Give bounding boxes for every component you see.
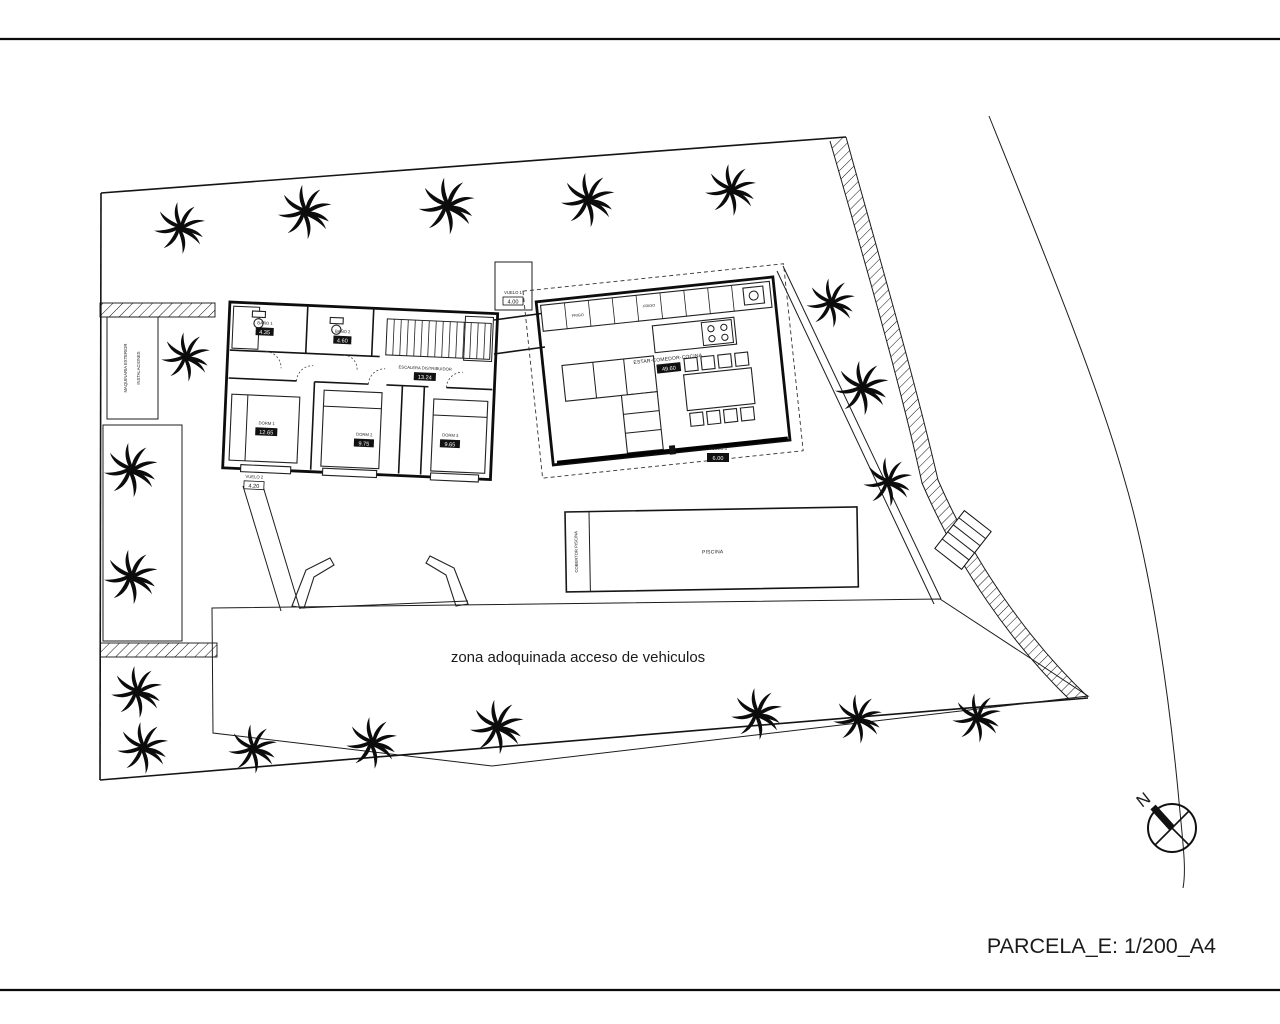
vuelo3-name: VUELO 3 xyxy=(709,446,727,451)
machinery-label-line2: INSTALACIONES xyxy=(136,351,141,384)
window xyxy=(241,465,291,474)
bano1-area: 4.35 xyxy=(259,330,270,336)
dorm3-name: DORM 3 xyxy=(442,432,459,438)
estar-area: 49.60 xyxy=(662,366,677,373)
dining-table xyxy=(682,352,757,427)
entry-walkway xyxy=(243,483,300,611)
site-plan-page: MAQUINARIA EXTERIOR INSTALACIONES zona a… xyxy=(0,0,1280,1024)
dorm2-name: DORM 2 xyxy=(356,432,373,438)
machinery-box xyxy=(107,317,158,419)
sofa xyxy=(562,356,663,459)
utility-yard-box xyxy=(103,425,182,641)
bano2-area: 4.60 xyxy=(337,338,348,344)
north-needle xyxy=(1153,807,1172,828)
bed-dorm2 xyxy=(321,390,382,468)
pool: COBERTOR PISCINA PISCINA xyxy=(565,507,858,592)
dorm2-area: 9.75 xyxy=(358,441,369,447)
hatch-strip-top xyxy=(100,303,215,317)
window xyxy=(322,468,376,477)
dorm1-area: 12.65 xyxy=(259,430,273,437)
vuelo3-label: VUELO 3 6.00 xyxy=(707,446,729,462)
sheet-title: PARCELA_E: 1/200_A4 xyxy=(987,934,1216,958)
vuelo1-name: VUELO 1 xyxy=(504,290,522,295)
living-wing: FRIGO FRIGO xyxy=(523,264,803,478)
paved-zone-outline xyxy=(212,599,1088,766)
stair-run xyxy=(386,319,491,360)
site-plan-drawing: MAQUINARIA EXTERIOR INSTALACIONES zona a… xyxy=(0,0,1280,1024)
entrance-canopy: VUELO 1 4.00 xyxy=(495,262,532,310)
north-compass: N xyxy=(1133,789,1196,852)
vuelo2-value: 4.20 xyxy=(248,483,259,489)
hatch-strip-bottom xyxy=(100,643,217,657)
machinery-area: MAQUINARIA EXTERIOR INSTALACIONES xyxy=(100,303,217,657)
vuelo2-name: VUELO 2 xyxy=(245,474,264,480)
boundary-hatch-band xyxy=(830,137,1088,700)
bano1-name: BAÑO 1 xyxy=(257,320,273,326)
road-edge-curve xyxy=(989,116,1184,888)
pool-label: PISCINA xyxy=(702,549,724,555)
sink-icon xyxy=(743,286,765,305)
bano2-name: BAÑO 2 xyxy=(335,329,351,335)
bedroom-wing: BAÑO 1 4.35 BAÑO 2 4.60 ESCALERA DISTRIB… xyxy=(222,302,498,500)
pool-cover-label: COBERTOR PISCINA xyxy=(573,531,579,573)
dorm1-name: DORM 1 xyxy=(258,420,275,426)
vuelo3-value: 6.00 xyxy=(713,456,724,462)
vuelo1-value: 4.00 xyxy=(508,300,519,306)
escalera-area: 13.24 xyxy=(418,375,432,382)
north-letter: N xyxy=(1133,789,1154,812)
kitchen-island xyxy=(652,317,736,352)
sun-loungers xyxy=(292,556,468,608)
machinery-label-line1: MAQUINARIA EXTERIOR xyxy=(123,344,128,393)
escalera-name: ESCALERA DISTRIBUIDOR xyxy=(398,364,451,371)
window xyxy=(430,473,478,482)
paved-zone-caption: zona adoquinada acceso de vehiculos xyxy=(451,649,705,666)
dorm3-area: 9.65 xyxy=(444,442,455,448)
bed-dorm3 xyxy=(431,399,488,473)
facade-handle xyxy=(669,445,676,455)
